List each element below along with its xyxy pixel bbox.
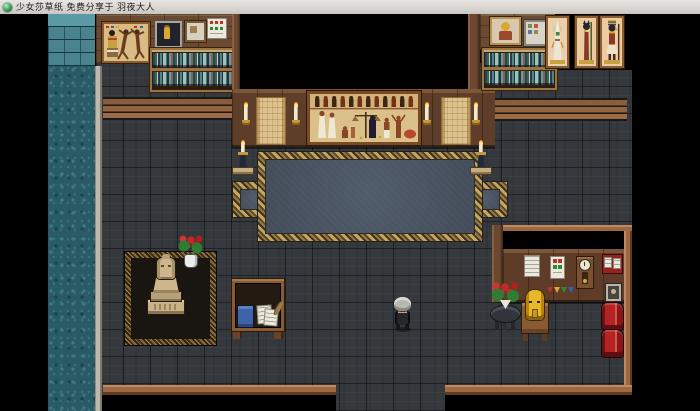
rose-vase: [176, 234, 206, 270]
cuckoo-clock: [576, 256, 594, 289]
south-void-left: [102, 395, 336, 411]
sarcophagus-picture: [155, 21, 182, 48]
screenshot-root: 少女莎草纸 免费分享于 羽夜大人: [0, 0, 700, 411]
notice-paper: [525, 256, 539, 276]
deity-painting-horus: [600, 16, 624, 68]
photo-frame: [606, 284, 621, 301]
wall-candle: [471, 102, 481, 144]
room-ceiling-void: [503, 231, 624, 249]
rpg-game-icon: [3, 3, 12, 12]
stone-edge: [95, 66, 102, 411]
blue-book: [238, 306, 253, 327]
south-void-right: [445, 395, 632, 411]
gold-relief-panel-left: [256, 97, 286, 145]
gold-relief-panel-right: [441, 97, 471, 145]
red-chair: [602, 303, 623, 330]
candle-stand-left: [232, 140, 254, 174]
wall-candle: [241, 102, 251, 144]
south-wall-right: [445, 385, 632, 395]
grid-frame: [524, 20, 547, 46]
candle-stand-right: [470, 140, 492, 174]
round-table-roses: [489, 280, 522, 332]
alcove-pillar-left: [232, 14, 240, 89]
alcove-pillar-right: [468, 14, 480, 89]
bench-right: [495, 98, 627, 121]
alcove-ceiling-void: [240, 14, 468, 89]
south-doorway: [336, 385, 445, 411]
bench-left: [103, 97, 240, 120]
room-border-right: [624, 231, 632, 395]
player-character: [392, 297, 414, 333]
writing-desk: [231, 278, 285, 341]
party-garland: [545, 286, 575, 296]
stone-brick-wall: [48, 14, 95, 66]
poster: [551, 257, 564, 278]
pin-board: [602, 254, 623, 274]
window-title: 少女莎草纸 免费分享于 羽夜大人: [16, 1, 155, 14]
deity-painting-bastet: [575, 16, 598, 68]
deity-painting-osiris: [546, 16, 569, 68]
small-wall-frame: [185, 21, 206, 42]
waterfall-column: [48, 66, 95, 411]
wall-candle: [291, 102, 301, 144]
ornate-carpet: [258, 152, 482, 241]
pharaoh-gold-mask: [526, 290, 544, 320]
gold-mask-table: [521, 290, 549, 341]
game-viewport[interactable]: [0, 14, 700, 411]
wall-candle: [422, 102, 432, 144]
portrait-picture: [490, 17, 521, 45]
egyptian-dancers-painting: [102, 22, 150, 63]
bookshelf-left: [150, 48, 236, 92]
window-titlebar[interactable]: 少女莎草纸 免费分享于 羽夜大人: [0, 0, 700, 15]
south-wall-left: [103, 385, 336, 395]
calendar-frame: [208, 19, 226, 38]
egyptian-mural: [307, 91, 421, 145]
red-chair: [602, 330, 623, 357]
